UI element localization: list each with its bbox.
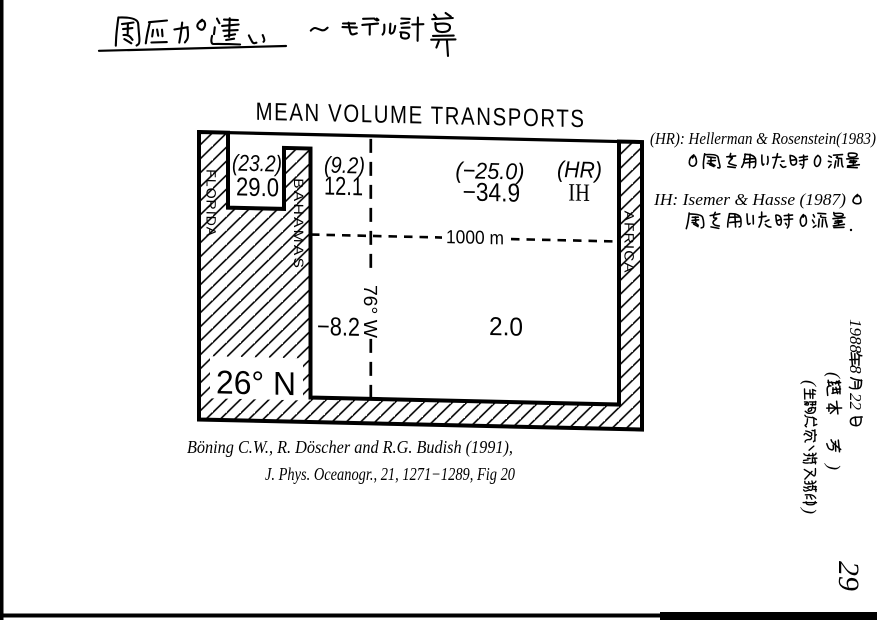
svg-text:Böning C.W., R. Döscher and R.: Böning C.W., R. Döscher and R.G. Budish … (187, 437, 513, 458)
svg-text:(: ( (799, 380, 820, 387)
svg-text:12.1: 12.1 (324, 171, 363, 202)
svg-text:): ) (823, 463, 844, 470)
svg-text:): ) (799, 507, 820, 514)
svg-text:29.0: 29.0 (236, 171, 279, 202)
svg-text:2.0: 2.0 (489, 311, 523, 342)
svg-text:1988: 1988 (846, 319, 865, 354)
svg-text:FLORIDA: FLORIDA (204, 169, 219, 237)
svg-text:−34.9: −34.9 (463, 176, 520, 207)
svg-text:IH: Isemer & Hasse (1987): IH: Isemer & Hasse (1987) (653, 190, 846, 209)
svg-text:1000 m: 1000 m (446, 227, 504, 249)
svg-text:26° N: 26° N (216, 363, 296, 402)
svg-text:IH: IH (568, 179, 590, 206)
svg-text:BAHAMAS: BAHAMAS (291, 178, 306, 270)
svg-text:(: ( (823, 372, 844, 379)
svg-text:22: 22 (846, 393, 865, 411)
svg-text:76° W: 76° W (359, 285, 380, 339)
svg-text:8: 8 (846, 365, 865, 374)
svg-text:AFRICA: AFRICA (622, 211, 637, 274)
svg-text:−8.2: −8.2 (317, 311, 360, 342)
svg-text:J. Phys. Oceanogr., 21, 1271−1: J. Phys. Oceanogr., 21, 1271−1289, Fig 2… (265, 464, 515, 484)
svg-text:(HR): Hellerman & Rosenstein(1: (HR): Hellerman & Rosenstein(1983) (650, 129, 876, 148)
svg-text:29: 29 (832, 561, 865, 591)
